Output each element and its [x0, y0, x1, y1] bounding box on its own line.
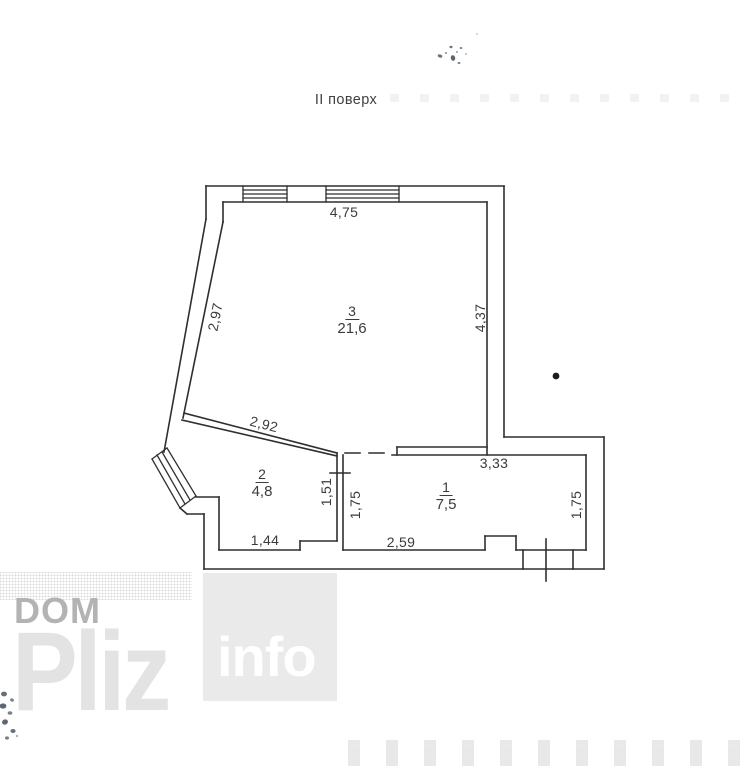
room-2-area: 4,8 [252, 483, 273, 501]
room-3-label: 3 21,6 [337, 304, 366, 338]
floor-title: II поверх [315, 92, 377, 108]
ink-splotch-bottom-left [0, 692, 18, 740]
dim-room1-top: 3,33 [480, 455, 508, 471]
dim-room1-left: 1,75 [347, 491, 363, 519]
inner-walls [182, 202, 586, 581]
room-2-label: 2 4,8 [252, 467, 273, 501]
window-2 [326, 186, 399, 202]
outer-walls [164, 186, 604, 569]
scanned-floor-plan-page: DOM Pliz info [0, 0, 756, 768]
dim-top-wall: 4,75 [330, 204, 358, 220]
room-3-area: 21,6 [337, 320, 366, 338]
room-1-number: 1 [439, 480, 453, 496]
room-1-label: 1 7,5 [436, 480, 457, 514]
room-3-number: 3 [345, 304, 359, 320]
window-1 [243, 186, 287, 202]
dim-room1-right: 1,75 [568, 491, 584, 519]
room-1-area: 7,5 [436, 496, 457, 514]
dim-room2-right: 1,51 [318, 478, 334, 506]
wall-dot-mark [553, 373, 560, 380]
corner-window-band [152, 448, 196, 508]
dim-room2-bottom: 1,44 [251, 532, 279, 548]
dim-right-wall: 4,37 [472, 304, 488, 332]
floor-plan-drawing [0, 0, 756, 768]
ink-splotch-top [437, 33, 478, 64]
dim-room1-bottom: 2,59 [387, 534, 415, 550]
room-2-number: 2 [255, 467, 269, 483]
